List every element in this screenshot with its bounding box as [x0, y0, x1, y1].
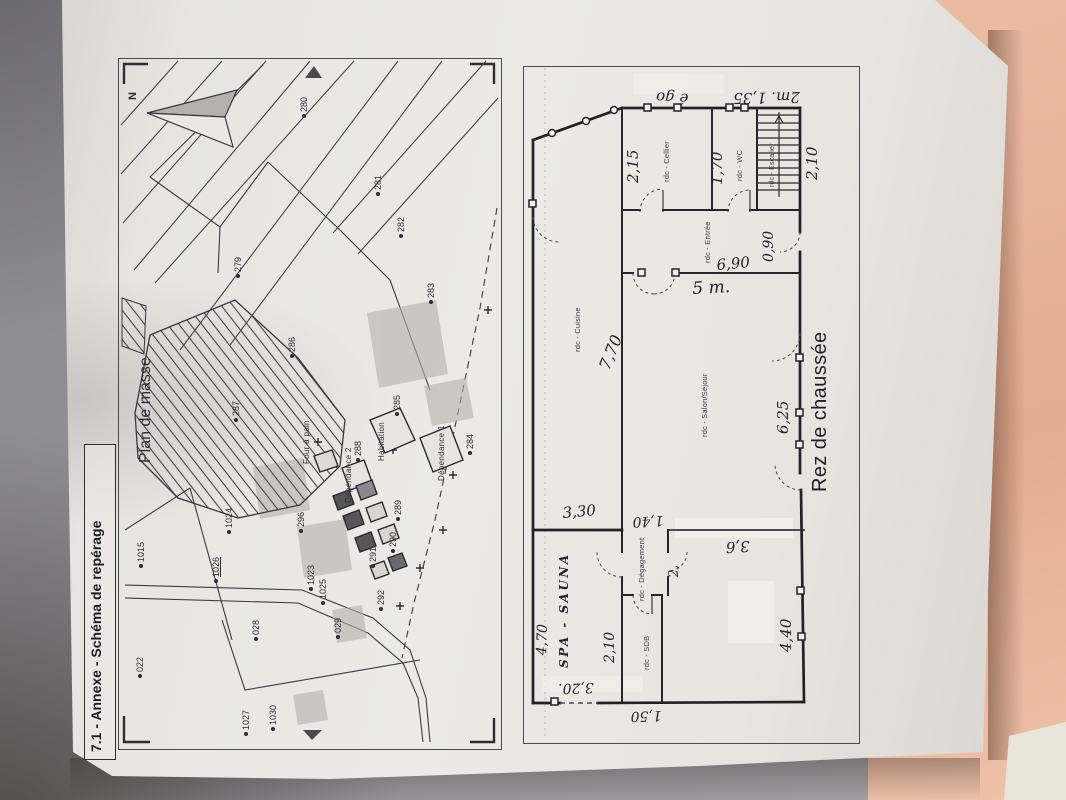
dimension-annotation: 1,70 [710, 152, 725, 185]
parcel-number-label: 028 [252, 620, 261, 641]
parcel-number-label: 285 [393, 395, 402, 416]
room-label: rdc - Cuisine [574, 307, 582, 352]
north-label: N [128, 92, 139, 100]
dimension-annotation: é go [656, 89, 689, 106]
road-lines [121, 61, 498, 350]
parcel-number-label: 296 [297, 512, 306, 533]
building-label: Dépendance 1 [438, 425, 446, 481]
parcel-number-label: 1030 [269, 705, 278, 731]
dimension-annotation: 3,20. [558, 680, 594, 695]
room-label: rdc - WC [736, 150, 744, 181]
dimension-annotation: 2,10 [805, 147, 820, 180]
parcel-number-label: 287 [232, 401, 241, 422]
parcel-number-label: 286 [288, 337, 297, 358]
dimension-annotation: 3,6 [725, 538, 750, 554]
dimension-annotation: 1,40 [632, 513, 664, 529]
site-plan-title: Plan de masse [138, 357, 154, 463]
dimension-annotation: 6,90 [716, 255, 751, 273]
dimension-annotation: SPA - SAUNA [558, 552, 570, 668]
parcel-number-label: 281 [374, 175, 383, 196]
dimension-annotation: 4,70 [535, 624, 550, 656]
parcel-number-label: 1024 [225, 508, 234, 534]
parcel-number-label: 279 [234, 257, 243, 278]
dimension-annotation: 6,25 [776, 401, 791, 434]
dimension-annotation: 2,15 [626, 150, 641, 183]
parcel-number-label: 280 [300, 97, 309, 118]
room-label: rdc - Escalier [769, 143, 776, 187]
building-label: Habitation [378, 422, 386, 461]
north-arrow-icon [147, 90, 237, 147]
dimension-annotation: 2, [667, 565, 681, 578]
dimension-annotation: 5 m. [692, 279, 731, 298]
parcel-number-label: 1015 [137, 542, 146, 568]
parcel-number-label: 292 [377, 590, 386, 611]
dimension-annotation: 2,10 [603, 632, 617, 663]
parcel-number-label: 029 [334, 618, 343, 639]
photo-of-document: 7.1 - Annexe - Schéma de repérage [0, 0, 1066, 800]
site-plan-drawing [118, 58, 500, 748]
room-label: rdc - Salon/Séjour [701, 373, 709, 437]
room-label: rdc - Cellier [663, 141, 671, 182]
parcel-number-label: 1027 [242, 710, 251, 736]
dimension-annotation: 1,50 [630, 708, 662, 723]
floor-plan-caption: Rez de chaussée [810, 331, 830, 492]
dimension-annotation: 3,30 [562, 503, 597, 521]
stairs [757, 112, 800, 197]
parcel-number-label: 288 [354, 441, 363, 462]
building-label: Four à pain [303, 420, 311, 464]
room-label: rdc - SDB [643, 636, 651, 670]
parcel-number-label: 022 [136, 657, 145, 678]
map-triangle-bottom [303, 730, 322, 740]
parcel-number-label: 1025 [319, 579, 328, 605]
dimension-annotation: 0,90 [762, 231, 776, 262]
parcel-number-label: 291 [369, 547, 378, 568]
annex-title: 7.1 - Annexe - Schéma de repérage [89, 521, 103, 752]
parcel-number-label: 282 [397, 217, 406, 238]
room-label: rdc - Dégagement [638, 538, 646, 601]
parcel-number-label: 289 [394, 500, 403, 521]
parcel-number-label: 1026 [212, 557, 221, 583]
parcel-number-label: 290 [389, 532, 398, 553]
dimension-annotation: 4,40 [779, 619, 794, 652]
parcel-number-label: 1023 [307, 565, 316, 591]
building-label: Dépendance 2 [345, 447, 353, 503]
dimension-annotation: 2m. 1,35 [733, 89, 800, 105]
parcel-number-label: 284 [466, 434, 475, 455]
map-triangle-top [305, 66, 322, 78]
parcel-number-label: 283 [427, 283, 436, 304]
room-label: rdc - Entrée [704, 221, 712, 263]
